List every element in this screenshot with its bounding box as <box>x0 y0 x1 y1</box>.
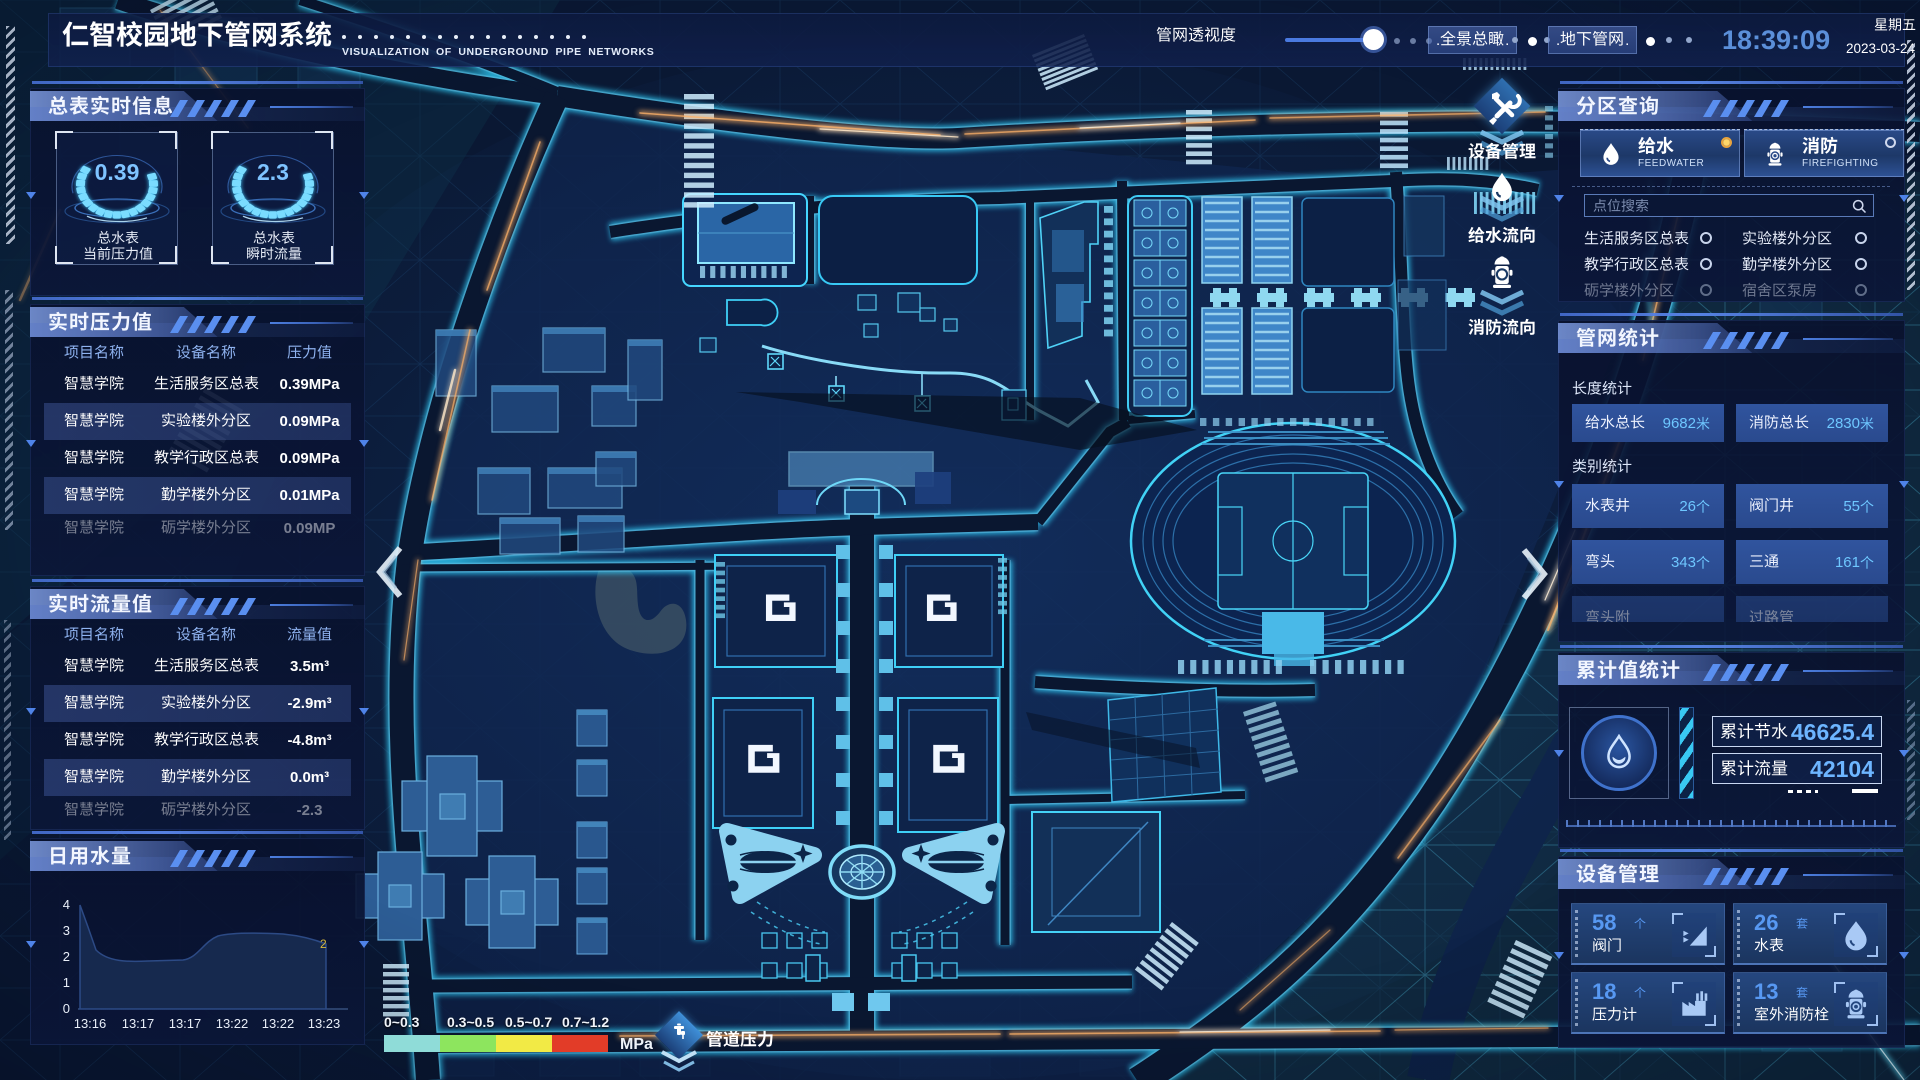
svg-text:13:17: 13:17 <box>169 1016 202 1031</box>
svg-text:13:22: 13:22 <box>262 1016 295 1031</box>
svg-text:13:16: 13:16 <box>74 1016 107 1031</box>
svg-text:13:23: 13:23 <box>308 1016 341 1031</box>
svg-text:2: 2 <box>63 949 70 964</box>
svg-text:0: 0 <box>63 1001 70 1016</box>
svg-text:4: 4 <box>63 897 70 912</box>
svg-text:3: 3 <box>63 923 70 938</box>
svg-text:13:22: 13:22 <box>216 1016 249 1031</box>
svg-text:2: 2 <box>320 937 327 951</box>
svg-text:1: 1 <box>63 975 70 990</box>
svg-text:13:17: 13:17 <box>122 1016 155 1031</box>
